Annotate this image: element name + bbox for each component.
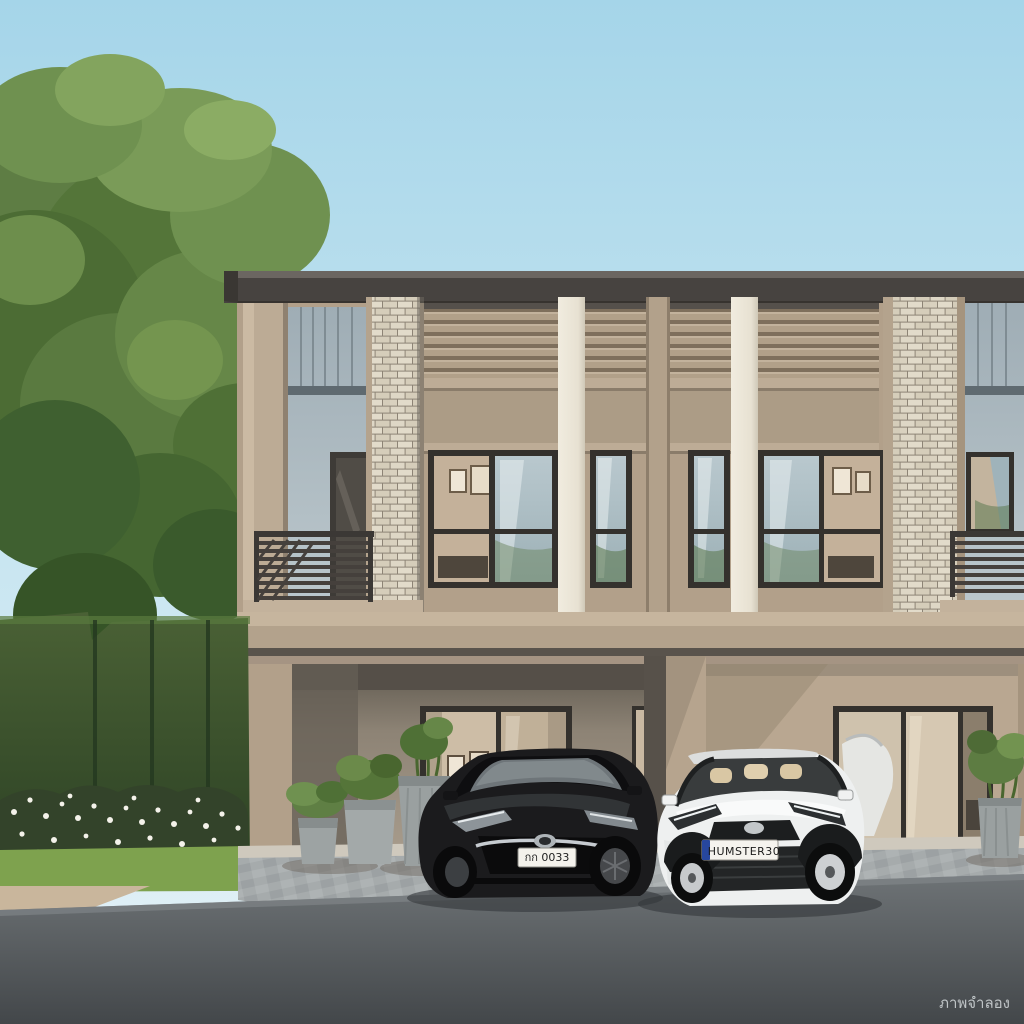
license-plate-white-car: HUMSTER30	[702, 840, 780, 860]
townhome-rendering: กก 0033	[0, 0, 1024, 1024]
license-plate-black-car: กก 0033	[518, 848, 576, 867]
watermark-text: ภาพจำลอง	[939, 994, 1010, 1012]
slab-band	[237, 612, 1024, 664]
window-far-right	[966, 452, 1014, 534]
license-plate-black-car-text: กก 0033	[525, 851, 570, 864]
window-center-left	[590, 450, 632, 588]
window-left-main	[428, 450, 558, 588]
center-cross-band	[646, 297, 670, 663]
rendering-canvas: กก 0033	[0, 0, 1024, 1024]
brick-column-left	[366, 297, 424, 613]
window-center-right	[688, 450, 730, 588]
license-plate-white-car-text: HUMSTER30	[708, 845, 781, 858]
window-right-main	[758, 450, 886, 588]
